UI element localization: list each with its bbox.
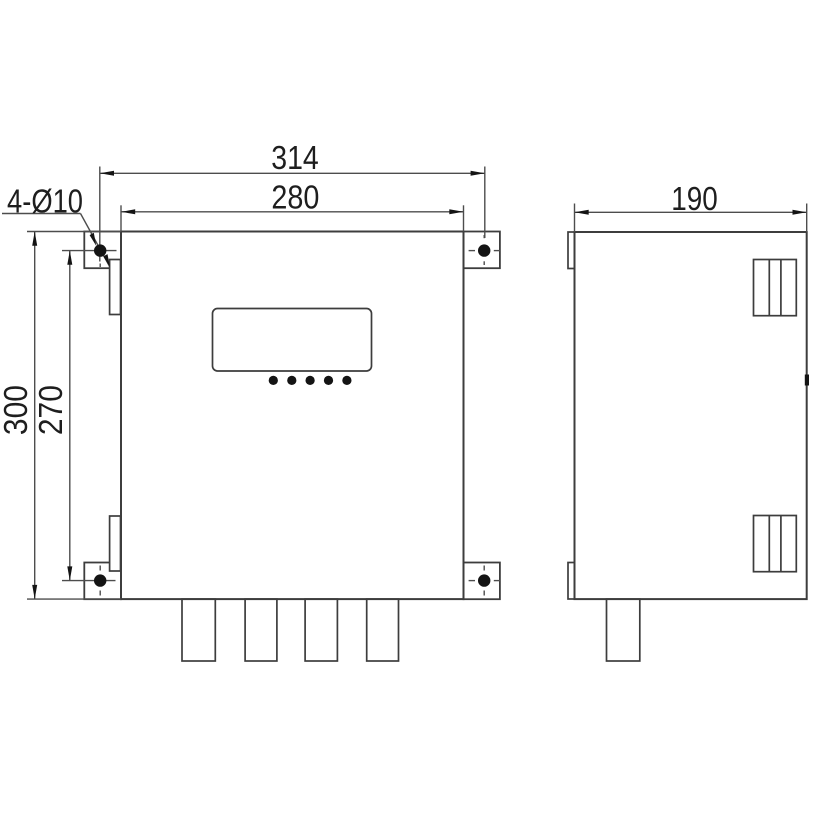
svg-text:314: 314 (271, 139, 319, 176)
svg-text:300: 300 (0, 385, 34, 435)
svg-text:280: 280 (271, 178, 319, 215)
svg-text:270: 270 (32, 385, 69, 435)
svg-text:190: 190 (671, 180, 718, 217)
svg-text:4-Ø10: 4-Ø10 (7, 183, 83, 220)
